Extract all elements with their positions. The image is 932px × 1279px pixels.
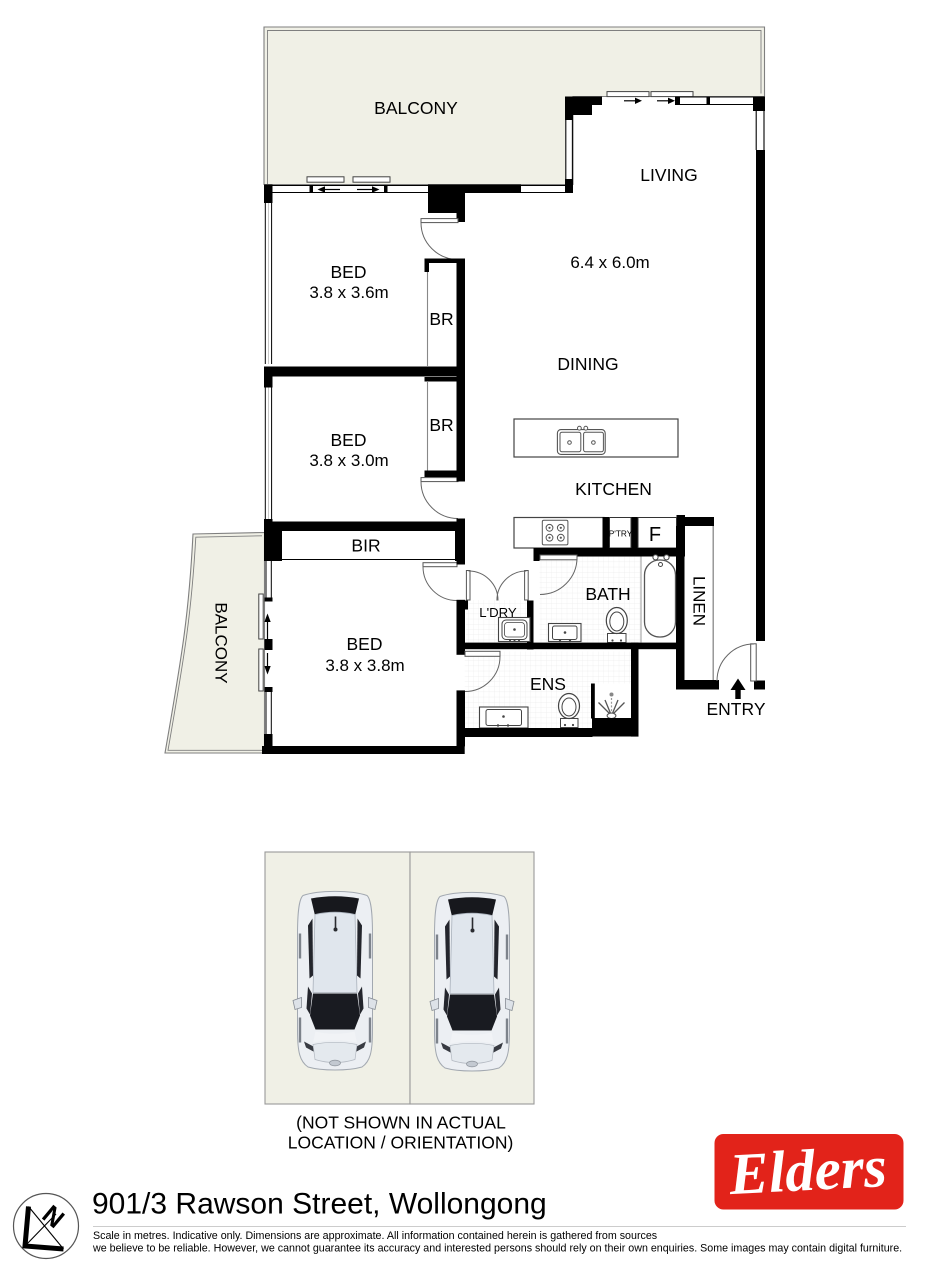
svg-text:KITCHEN: KITCHEN [575, 479, 652, 499]
svg-text:BIR: BIR [351, 536, 380, 556]
svg-text:DINING: DINING [557, 354, 618, 374]
svg-text:ENS: ENS [530, 674, 566, 694]
svg-text:LIVING: LIVING [640, 165, 697, 185]
svg-text:BED: BED [347, 634, 383, 654]
svg-text:(NOT SHOWN IN ACTUAL: (NOT SHOWN IN ACTUAL [296, 1113, 506, 1133]
svg-text:BALCONY: BALCONY [374, 98, 458, 118]
svg-text:P'TRY: P'TRY [609, 529, 633, 539]
svg-text:3.8 x 3.6m: 3.8 x 3.6m [309, 283, 388, 302]
svg-text:BED: BED [331, 430, 367, 450]
svg-text:BED: BED [331, 262, 367, 282]
svg-text:ENTRY: ENTRY [707, 699, 766, 719]
svg-text:Elders: Elders [727, 1133, 889, 1207]
svg-text:3.8 x 3.8m: 3.8 x 3.8m [325, 656, 404, 675]
svg-text:F: F [649, 524, 661, 546]
svg-text:Scale in metres. Indicative on: Scale in metres. Indicative only. Dimens… [93, 1230, 657, 1242]
svg-text:3.8 x 3.0m: 3.8 x 3.0m [309, 451, 388, 470]
svg-text:BATH: BATH [585, 584, 630, 604]
svg-text:6.4 x 6.0m: 6.4 x 6.0m [570, 253, 649, 272]
svg-text:901/3 Rawson Street, Wollongon: 901/3 Rawson Street, Wollongong [92, 1188, 547, 1221]
svg-text:BR: BR [429, 415, 453, 435]
svg-text:LOCATION / ORIENTATION): LOCATION / ORIENTATION) [288, 1133, 514, 1153]
svg-text:we believe to be reliable. How: we believe to be reliable. However, we c… [92, 1243, 902, 1255]
svg-text:BR: BR [429, 309, 453, 329]
svg-text:BALCONY: BALCONY [212, 602, 231, 683]
svg-text:LINEN: LINEN [690, 576, 709, 626]
